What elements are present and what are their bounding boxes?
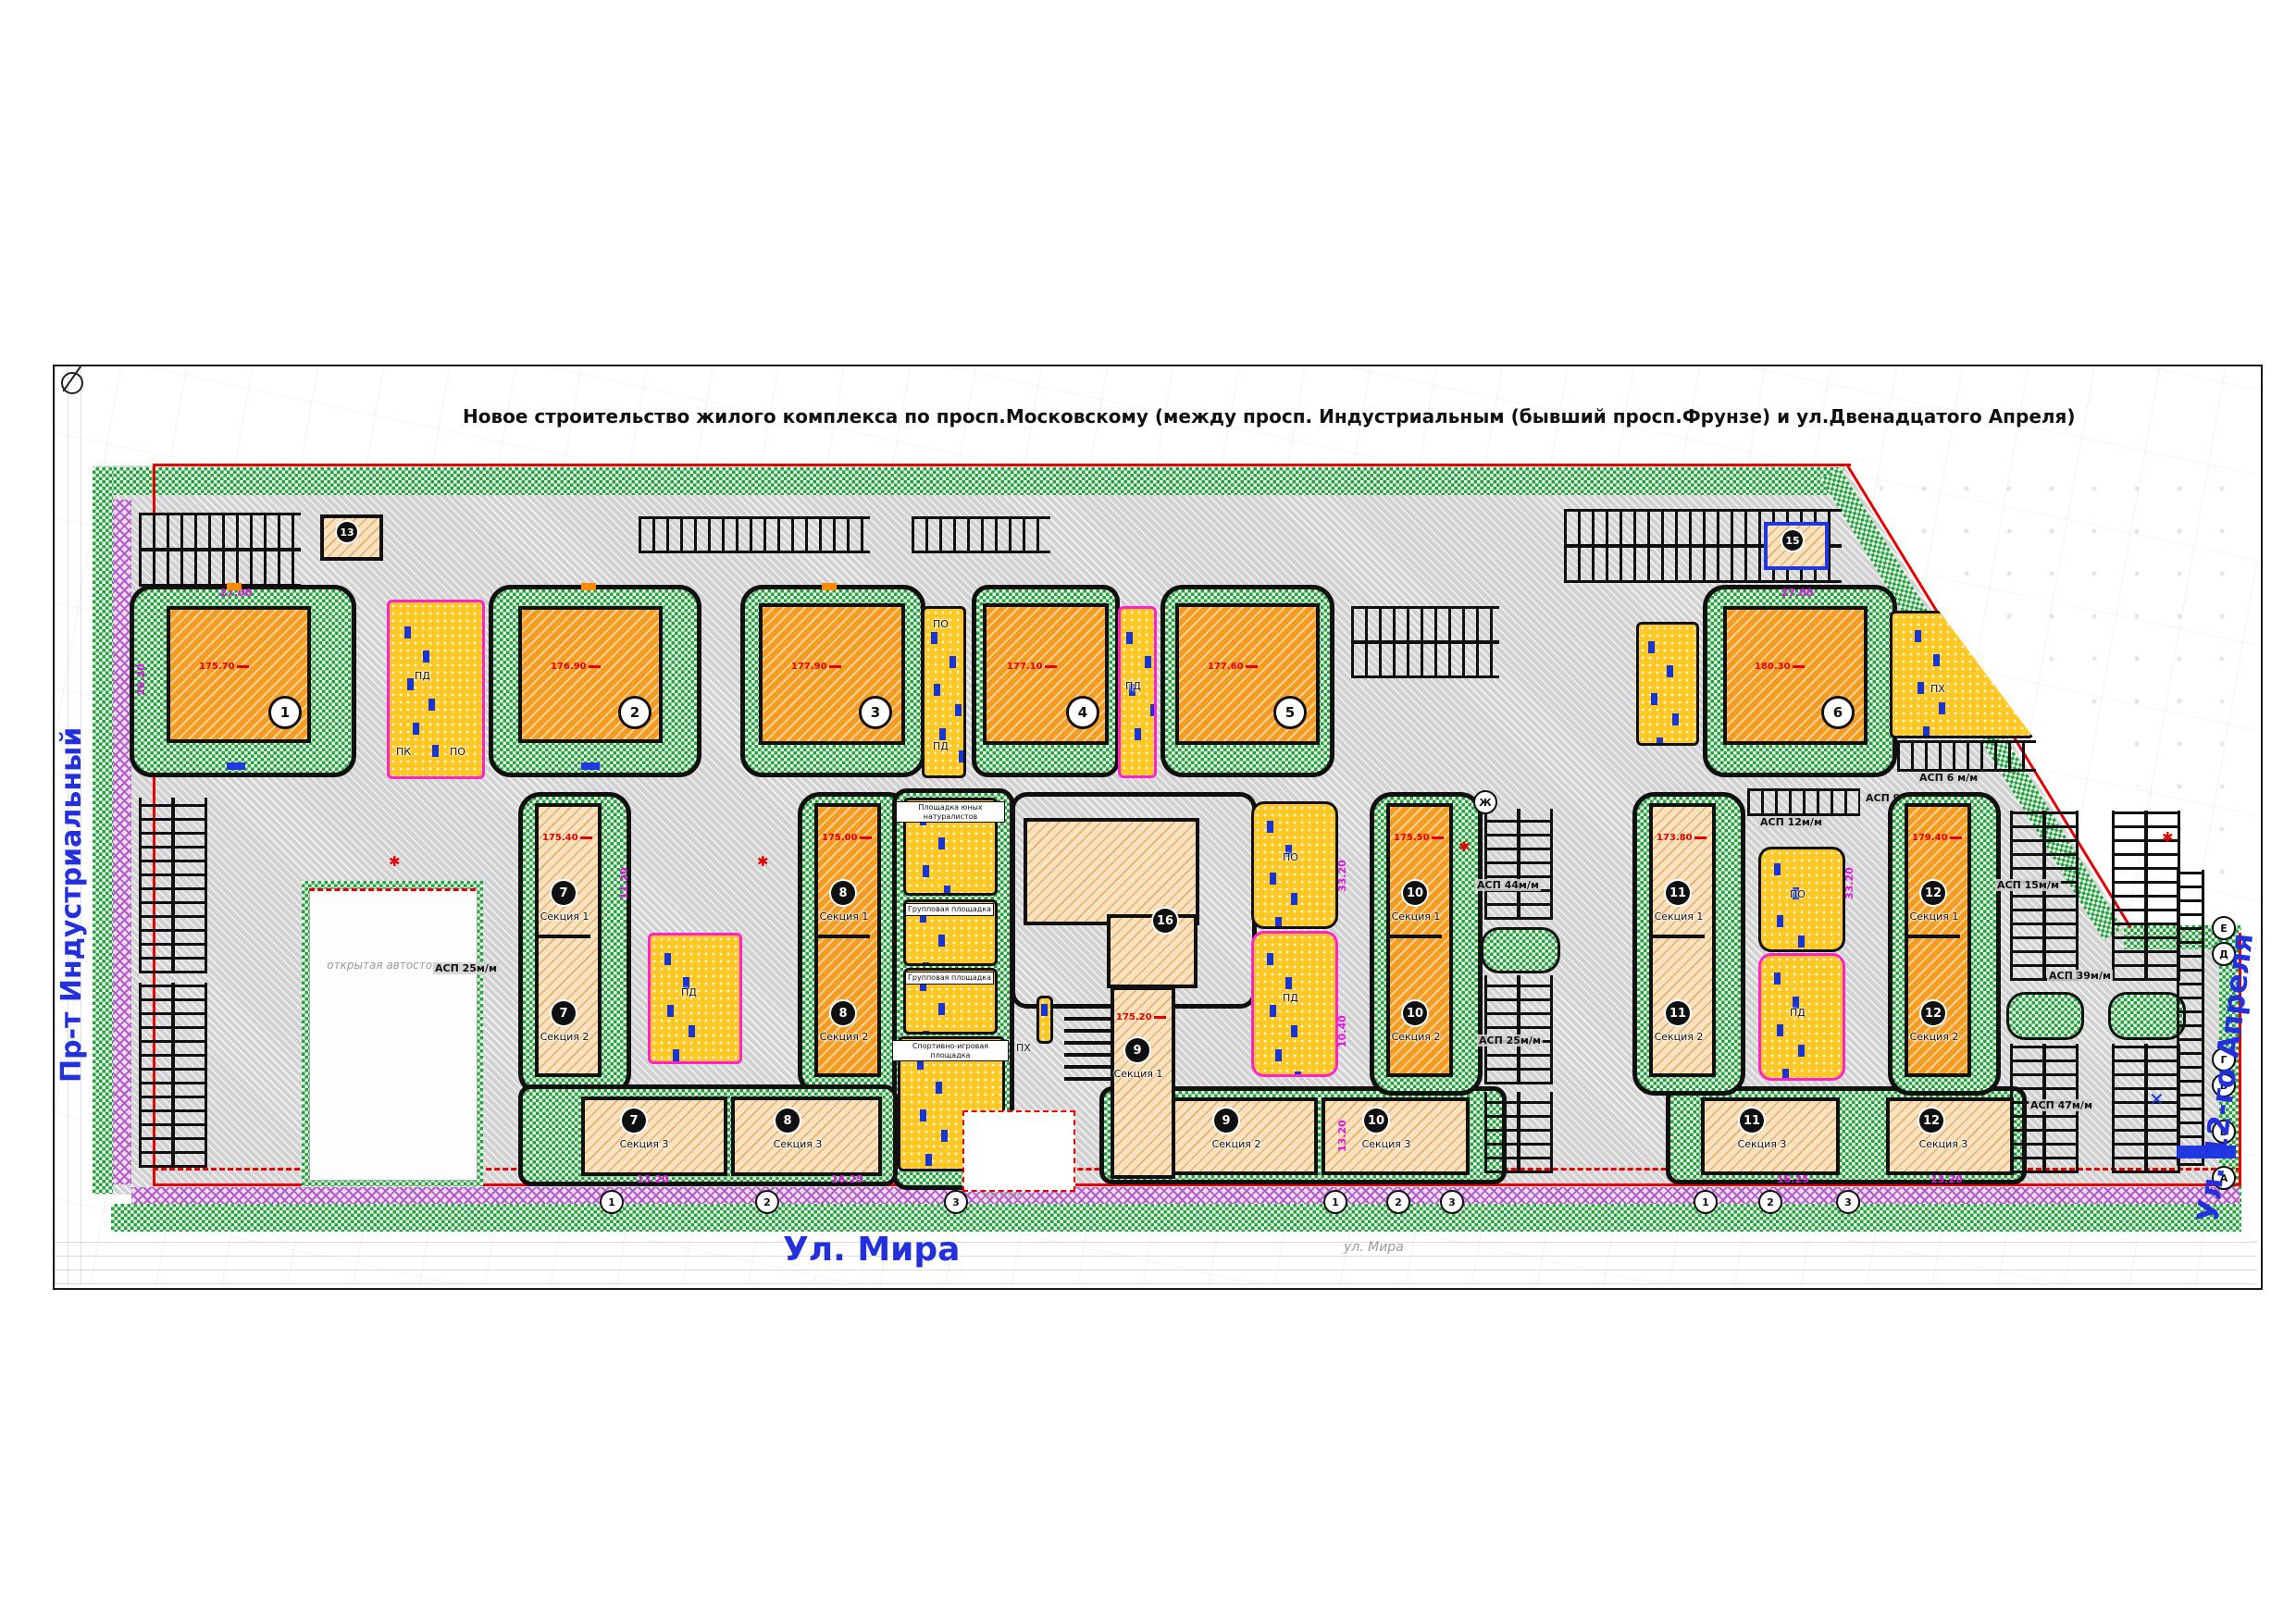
building-7-section2: Секция 2 — [527, 1031, 602, 1043]
building-10-badge: 10 — [1403, 881, 1427, 905]
parking-column — [2112, 811, 2147, 981]
dimension: 11.20 — [618, 851, 630, 916]
building-7-badge: 7 — [552, 881, 576, 905]
axis-bubble: 3 — [1440, 1190, 1464, 1214]
building-12-badge: 12 — [1921, 881, 1945, 905]
playground-po-label: ПО — [1790, 888, 1806, 900]
parking-column — [1518, 1092, 1553, 1173]
building-7-section1: Секция 1 — [527, 911, 602, 923]
building-9-elevation: 175.20 — [1116, 1012, 1166, 1022]
tower-5-badge: 5 — [1273, 696, 1307, 729]
building-7-elevation: 175.40 — [542, 833, 592, 843]
household-strip — [1036, 996, 1053, 1044]
playground-pd-label: ПД — [681, 986, 697, 998]
tower-2-elevation: 176.90 — [551, 662, 601, 672]
entrance-mark — [227, 762, 245, 770]
parking-row — [139, 513, 301, 551]
axis-bubble: 2 — [755, 1190, 779, 1214]
playground-pd-label: ПД — [1790, 1007, 1806, 1019]
dimension: 13.20 — [1930, 1173, 1963, 1185]
tower-3-badge: 3 — [859, 696, 892, 729]
parking-row — [1897, 740, 2036, 772]
shop-label: магазин — [983, 1190, 1023, 1200]
building-12-badge: 12 — [1919, 1109, 1943, 1133]
parking-island — [2006, 992, 2084, 1040]
parking-column — [2112, 1044, 2147, 1173]
parking-row — [912, 516, 1050, 553]
sidewalk-strip-left — [113, 500, 131, 1184]
building-10-section2: Секция 2 — [1379, 1031, 1453, 1043]
tower-6-dim-top: 27.00 — [1723, 587, 1871, 599]
building-10-elevation: 175.50 — [1394, 833, 1444, 843]
building-7-section3-slab — [581, 1096, 727, 1176]
boundary-line-top — [155, 464, 1851, 466]
playground-po-label: ПО — [1283, 851, 1298, 863]
open-lot-boundary — [309, 888, 476, 891]
street-label-mira: Ул. Мира — [783, 1231, 960, 1269]
parking-row — [1747, 788, 1860, 816]
building-11-section1: Секция 1 — [1642, 911, 1716, 923]
axis-bubble: 3 — [944, 1190, 968, 1214]
dimension: 33.20 — [1843, 851, 1855, 916]
tower-5-elevation: 177.60 — [1208, 662, 1258, 672]
parking-label: АСП 25м/м — [433, 962, 499, 974]
building-12-elevation: 179.40 — [1912, 833, 1962, 843]
existing-shop-building — [962, 1110, 1075, 1192]
parking-label: АСП 47м/м — [2029, 1099, 2094, 1111]
parking-column — [172, 798, 207, 973]
parking-label: АСП 6 м/м — [1917, 772, 1980, 784]
parking-row — [1351, 641, 1499, 678]
lawn-strip-left — [93, 467, 113, 1194]
red-mark-icon: ✱ — [757, 855, 769, 869]
parking-column — [2177, 870, 2204, 1166]
building-12-section2: Секция 2 — [1897, 1031, 1971, 1043]
parking-column — [2010, 811, 2045, 981]
parking-column — [139, 798, 174, 973]
parking-column — [172, 983, 207, 1168]
tower-4-badge: 4 — [1066, 696, 1099, 729]
parking-column — [2043, 811, 2079, 981]
parking-label: АСП 39м/м — [2047, 970, 2113, 982]
axis-bubble: 1 — [600, 1190, 624, 1214]
playground-pk-label: ПК — [396, 746, 411, 758]
playground-strip — [1118, 606, 1157, 778]
section-divider — [818, 935, 870, 938]
building-8-badge: 8 — [831, 1001, 855, 1025]
parking-column — [1518, 975, 1553, 1084]
building-8-section3: Секция 3 — [751, 1138, 844, 1150]
section-divider — [1390, 935, 1442, 938]
parking-column — [1484, 1092, 1520, 1173]
building-10-section3: Секция 3 — [1340, 1138, 1433, 1150]
courtyard-playground — [648, 933, 742, 1064]
building-11-elevation: 173.80 — [1657, 833, 1706, 843]
parking-row — [639, 516, 870, 553]
plan-title: Новое строительство жилого комплекса по … — [463, 405, 1832, 427]
tower-1-elevation: 175.70 — [199, 662, 249, 672]
section-divider — [539, 935, 590, 938]
street-survey-bottom — [55, 1233, 2257, 1284]
parking-label: АСП 25м/м — [1477, 1035, 1543, 1047]
playground-ph-label: ПХ — [1930, 683, 1945, 695]
building-12-section1: Секция 1 — [1897, 911, 1971, 923]
parking-row — [139, 548, 301, 587]
axis-bubble: 1 — [1694, 1190, 1718, 1214]
red-mark-icon: ✱ — [2162, 831, 2174, 845]
building-16-wing-a — [1024, 818, 1199, 925]
dimension: 10.40 — [1336, 999, 1348, 1064]
dimension: 33.20 — [1336, 844, 1348, 909]
parking-column — [1484, 975, 1520, 1084]
axis-bubble: 1 — [1323, 1190, 1347, 1214]
parking-label: АСП 15м/м — [1995, 879, 2061, 891]
tower-2-badge: 2 — [618, 696, 652, 729]
parking-label: АСП 12м/м — [1758, 816, 1824, 828]
building-8-badge: 8 — [831, 881, 855, 905]
section-divider — [1908, 935, 1960, 938]
building-12-section3: Секция 3 — [1897, 1138, 1990, 1150]
building-9-section1: Секция 1 — [1101, 1068, 1175, 1080]
entrance-mark — [581, 762, 600, 770]
tower-1-dim-side: 26.20 — [135, 638, 147, 722]
lawn-strip-top — [104, 467, 1843, 495]
parking-island — [2108, 992, 2186, 1040]
playground-po-label: ПО — [450, 746, 465, 758]
tower-6-elevation: 180.30 — [1755, 662, 1805, 672]
axis-bubble: 2 — [1758, 1190, 1782, 1214]
building-7-badge: 7 — [622, 1109, 646, 1133]
dimension: 13.20 — [637, 1173, 669, 1185]
axis-bubble: 3 — [1836, 1190, 1860, 1214]
tower-6-badge: 6 — [1821, 696, 1855, 729]
building-11-section3: Секция 3 — [1716, 1138, 1808, 1150]
playground-pd-label: ПД — [1125, 680, 1141, 692]
building-8-badge: 8 — [776, 1109, 800, 1133]
parking-column — [139, 983, 174, 1168]
building-8-elevation: 175.00 — [822, 833, 872, 843]
building-10-badge: 10 — [1403, 1001, 1427, 1025]
entrance-mark — [227, 583, 242, 590]
parking-column — [1484, 809, 1520, 920]
axis-bubble: Ж — [1473, 790, 1497, 814]
playground-ph-label: ПХ — [1016, 1042, 1031, 1054]
building-9-badge: 9 — [1125, 1038, 1149, 1062]
street-label-mira-small: ул. Мира — [1344, 1240, 1404, 1255]
tower-1-badge: 1 — [268, 696, 302, 729]
parking-column — [1518, 809, 1553, 920]
entrance-mark — [581, 583, 596, 590]
playground-po-label: ПО — [933, 618, 949, 630]
playground-pd-label: ПД — [415, 670, 430, 682]
building-9-section2-slab — [1172, 1097, 1318, 1175]
courtyard-playground-po — [1251, 801, 1338, 929]
building-7-badge: 7 — [552, 1001, 576, 1025]
dimension: 16.25 — [831, 1173, 863, 1185]
building-11-section2: Секция 2 — [1642, 1031, 1716, 1043]
building-16-wing-b — [1107, 914, 1198, 988]
sidewalk-strip-bottom — [131, 1187, 2240, 1204]
site-plan-sheet: Новое строительство жилого комплекса по … — [0, 0, 2296, 1623]
dimension: 13.20 — [1336, 1107, 1348, 1166]
section-divider — [1653, 935, 1705, 938]
building-12-badge: 12 — [1921, 1001, 1945, 1025]
playground-naturalists-label: Площадка юных натуралистов — [896, 801, 1005, 823]
building-9-section2: Секция 2 — [1190, 1138, 1283, 1150]
tower-4-elevation: 177.10 — [1007, 662, 1057, 672]
entrance-mark — [822, 583, 837, 590]
building-10-badge: 10 — [1364, 1109, 1388, 1133]
building-10-section1: Секция 1 — [1379, 911, 1453, 923]
dimension: 16.25 — [1777, 1173, 1809, 1185]
red-mark-icon: ✱ — [389, 855, 401, 869]
building-9-badge: 9 — [1214, 1109, 1238, 1133]
building-11-badge: 11 — [1740, 1109, 1764, 1133]
utility-playground-box — [1636, 622, 1699, 746]
axis-bubble: 2 — [1386, 1190, 1410, 1214]
parking-island — [1481, 927, 1560, 973]
parking-label: АСП 44м/м — [1475, 879, 1541, 891]
playground-pd-label: ПД — [1283, 992, 1298, 1004]
playground-group-1-label: Групповая площадка — [905, 903, 994, 916]
playground-sport-label: Спортивно-игровая площадка — [892, 1040, 1009, 1061]
courtyard-playground-pd — [1251, 931, 1338, 1077]
building-7-section3: Секция 3 — [598, 1138, 690, 1150]
playground-pd-label: ПД — [933, 740, 949, 752]
utility-15-badge: 15 — [1782, 530, 1803, 551]
open-parking-lot — [309, 888, 478, 1181]
playground-group-2-label: Групповая площадка — [905, 972, 994, 985]
building-8-section3-slab — [731, 1096, 882, 1176]
building-16-badge: 16 — [1153, 909, 1177, 933]
hydrant-mark-icon: ✕ — [2149, 1090, 2165, 1109]
building-11-badge: 11 — [1666, 881, 1690, 905]
utility-13-badge: 13 — [337, 522, 357, 542]
building-12-section3-slab — [1886, 1097, 2014, 1175]
playground-strip — [922, 606, 966, 778]
lawn-strip-bottom — [111, 1204, 2241, 1232]
parking-row — [1351, 606, 1499, 643]
building-8-section2: Секция 2 — [807, 1031, 881, 1043]
building-11-badge: 11 — [1666, 1001, 1690, 1025]
building-11-section3-slab — [1701, 1097, 1840, 1175]
tower-3-elevation: 177.90 — [791, 662, 841, 672]
street-label-industrialny: Пр-т Индустриальный — [56, 675, 88, 1083]
red-mark-icon: ✱ — [1458, 840, 1471, 854]
building-8-section1: Секция 1 — [807, 911, 881, 923]
